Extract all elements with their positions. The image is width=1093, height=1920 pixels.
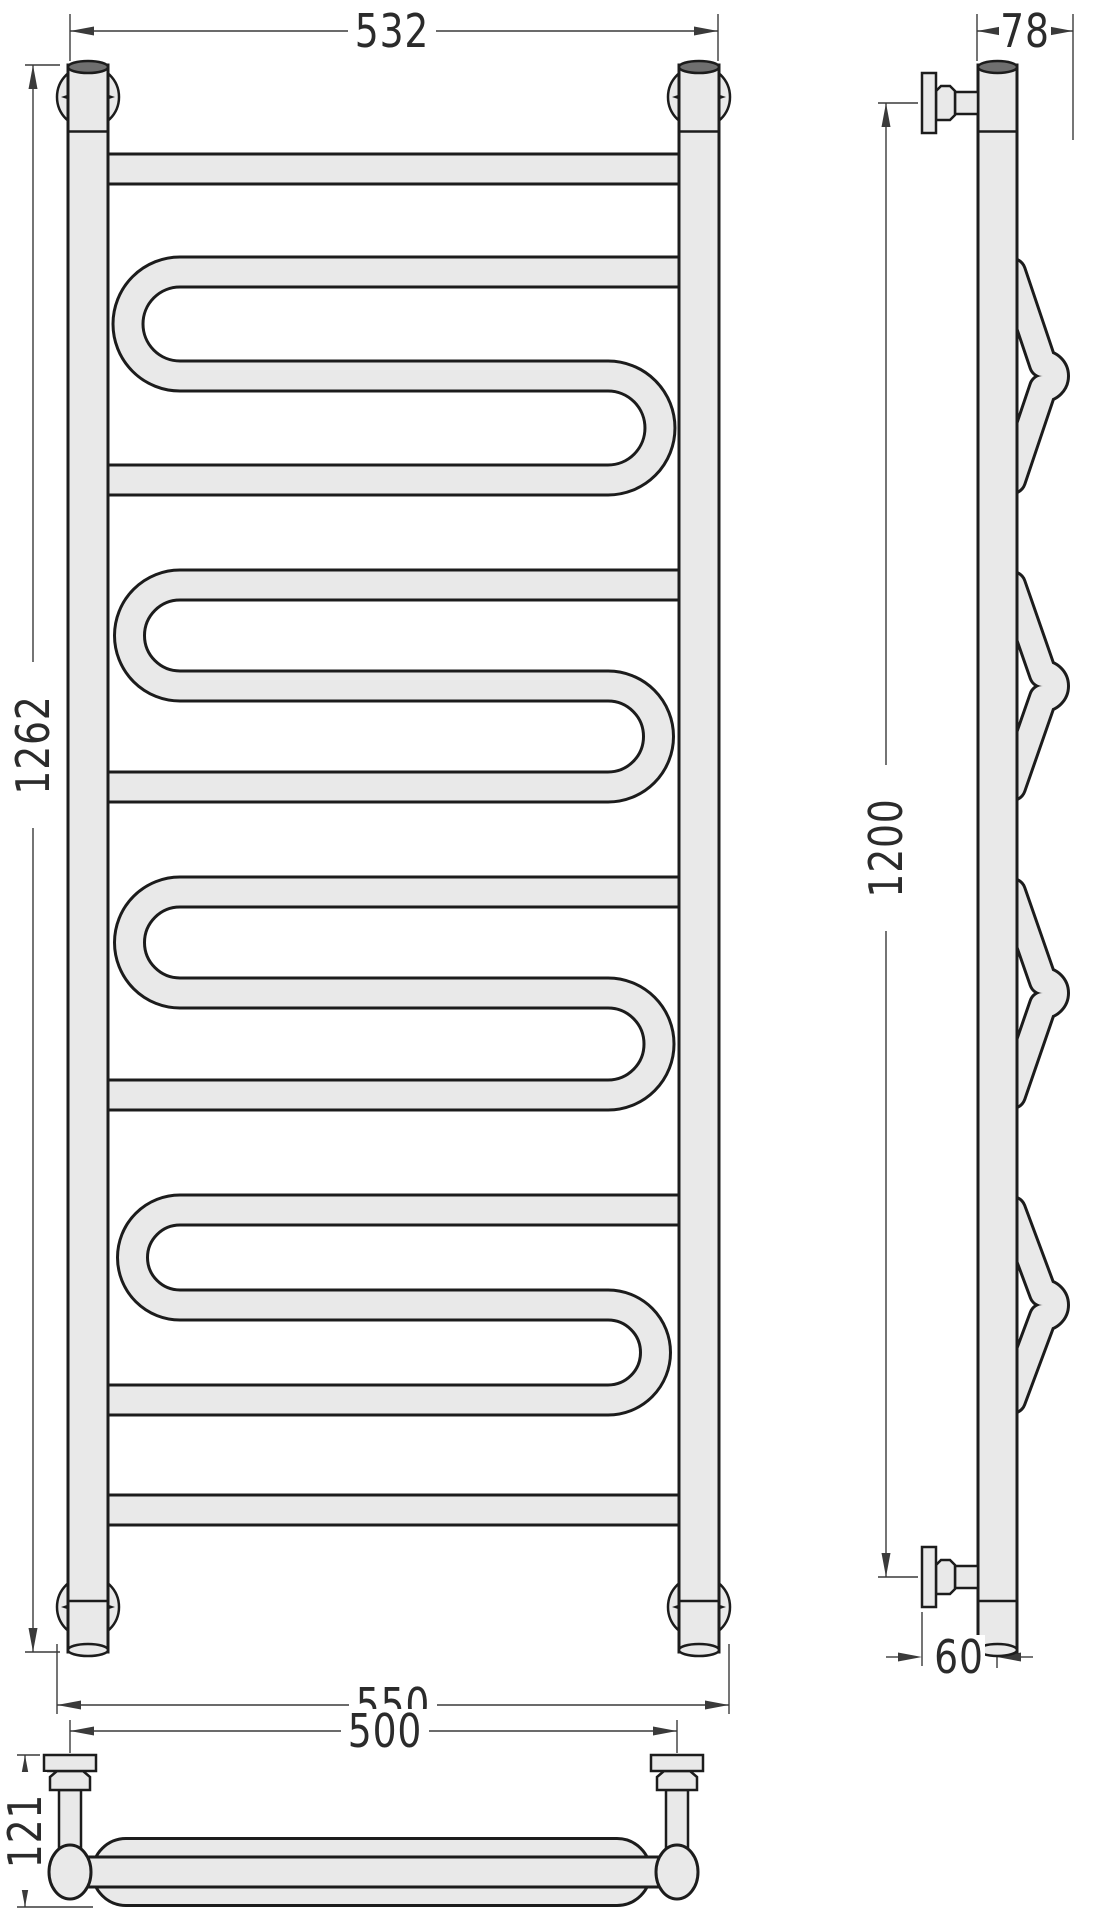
top-view	[44, 1755, 703, 1899]
dim-side-depth-label: 78	[1000, 4, 1050, 58]
dim-overall-height-label: 1262	[6, 695, 60, 794]
top-bracket-plate-right	[651, 1755, 703, 1771]
post-bottom-cap-right	[679, 1644, 719, 1656]
dim-top-view-depth-label: 121	[0, 1794, 52, 1868]
bracket-plate	[922, 1547, 936, 1607]
dimension-overall-height	[25, 65, 60, 1652]
bracket-neck	[955, 1566, 978, 1588]
post-section-left	[49, 1845, 91, 1899]
side-bar	[978, 65, 1017, 1652]
wall-bracket-bottom	[922, 1547, 978, 1607]
coil-4	[97, 1210, 694, 1400]
bracket-nut	[936, 1560, 955, 1594]
post-top-cap-right	[679, 61, 719, 73]
coil-2	[97, 585, 694, 787]
drawing-canvas: 532 78 1262 1200 550 500 121 60	[0, 0, 1093, 1920]
post-section-right	[656, 1845, 698, 1899]
dim-top-width-label: 532	[355, 4, 429, 58]
post-top-cap-left	[68, 61, 108, 73]
bracket-plate	[922, 73, 936, 133]
top-bracket-plate-left	[44, 1755, 96, 1771]
post-bottom-cap-left	[68, 1644, 108, 1656]
side-bar-top-cap	[978, 61, 1017, 73]
dim-mounting-height-label: 1200	[859, 798, 913, 897]
dim-mounting-width-label: 500	[348, 1704, 422, 1758]
top-bracket-nut-right	[657, 1771, 697, 1790]
bracket-nut	[936, 86, 955, 120]
wall-bracket-top	[922, 73, 978, 133]
side-view	[922, 61, 1055, 1656]
technical-drawing: 532 78 1262 1200 550 500 121 60	[0, 0, 1093, 1920]
top-bracket-nut-left	[50, 1771, 90, 1790]
coil-1	[97, 272, 694, 480]
front-left-post	[68, 65, 108, 1652]
coil-3	[97, 892, 694, 1095]
dimension-lines	[17, 14, 1073, 1907]
dim-wall-offset-label: 60	[934, 1630, 984, 1684]
bracket-neck	[955, 92, 978, 114]
front-right-post	[679, 65, 719, 1652]
front-view	[57, 61, 730, 1656]
